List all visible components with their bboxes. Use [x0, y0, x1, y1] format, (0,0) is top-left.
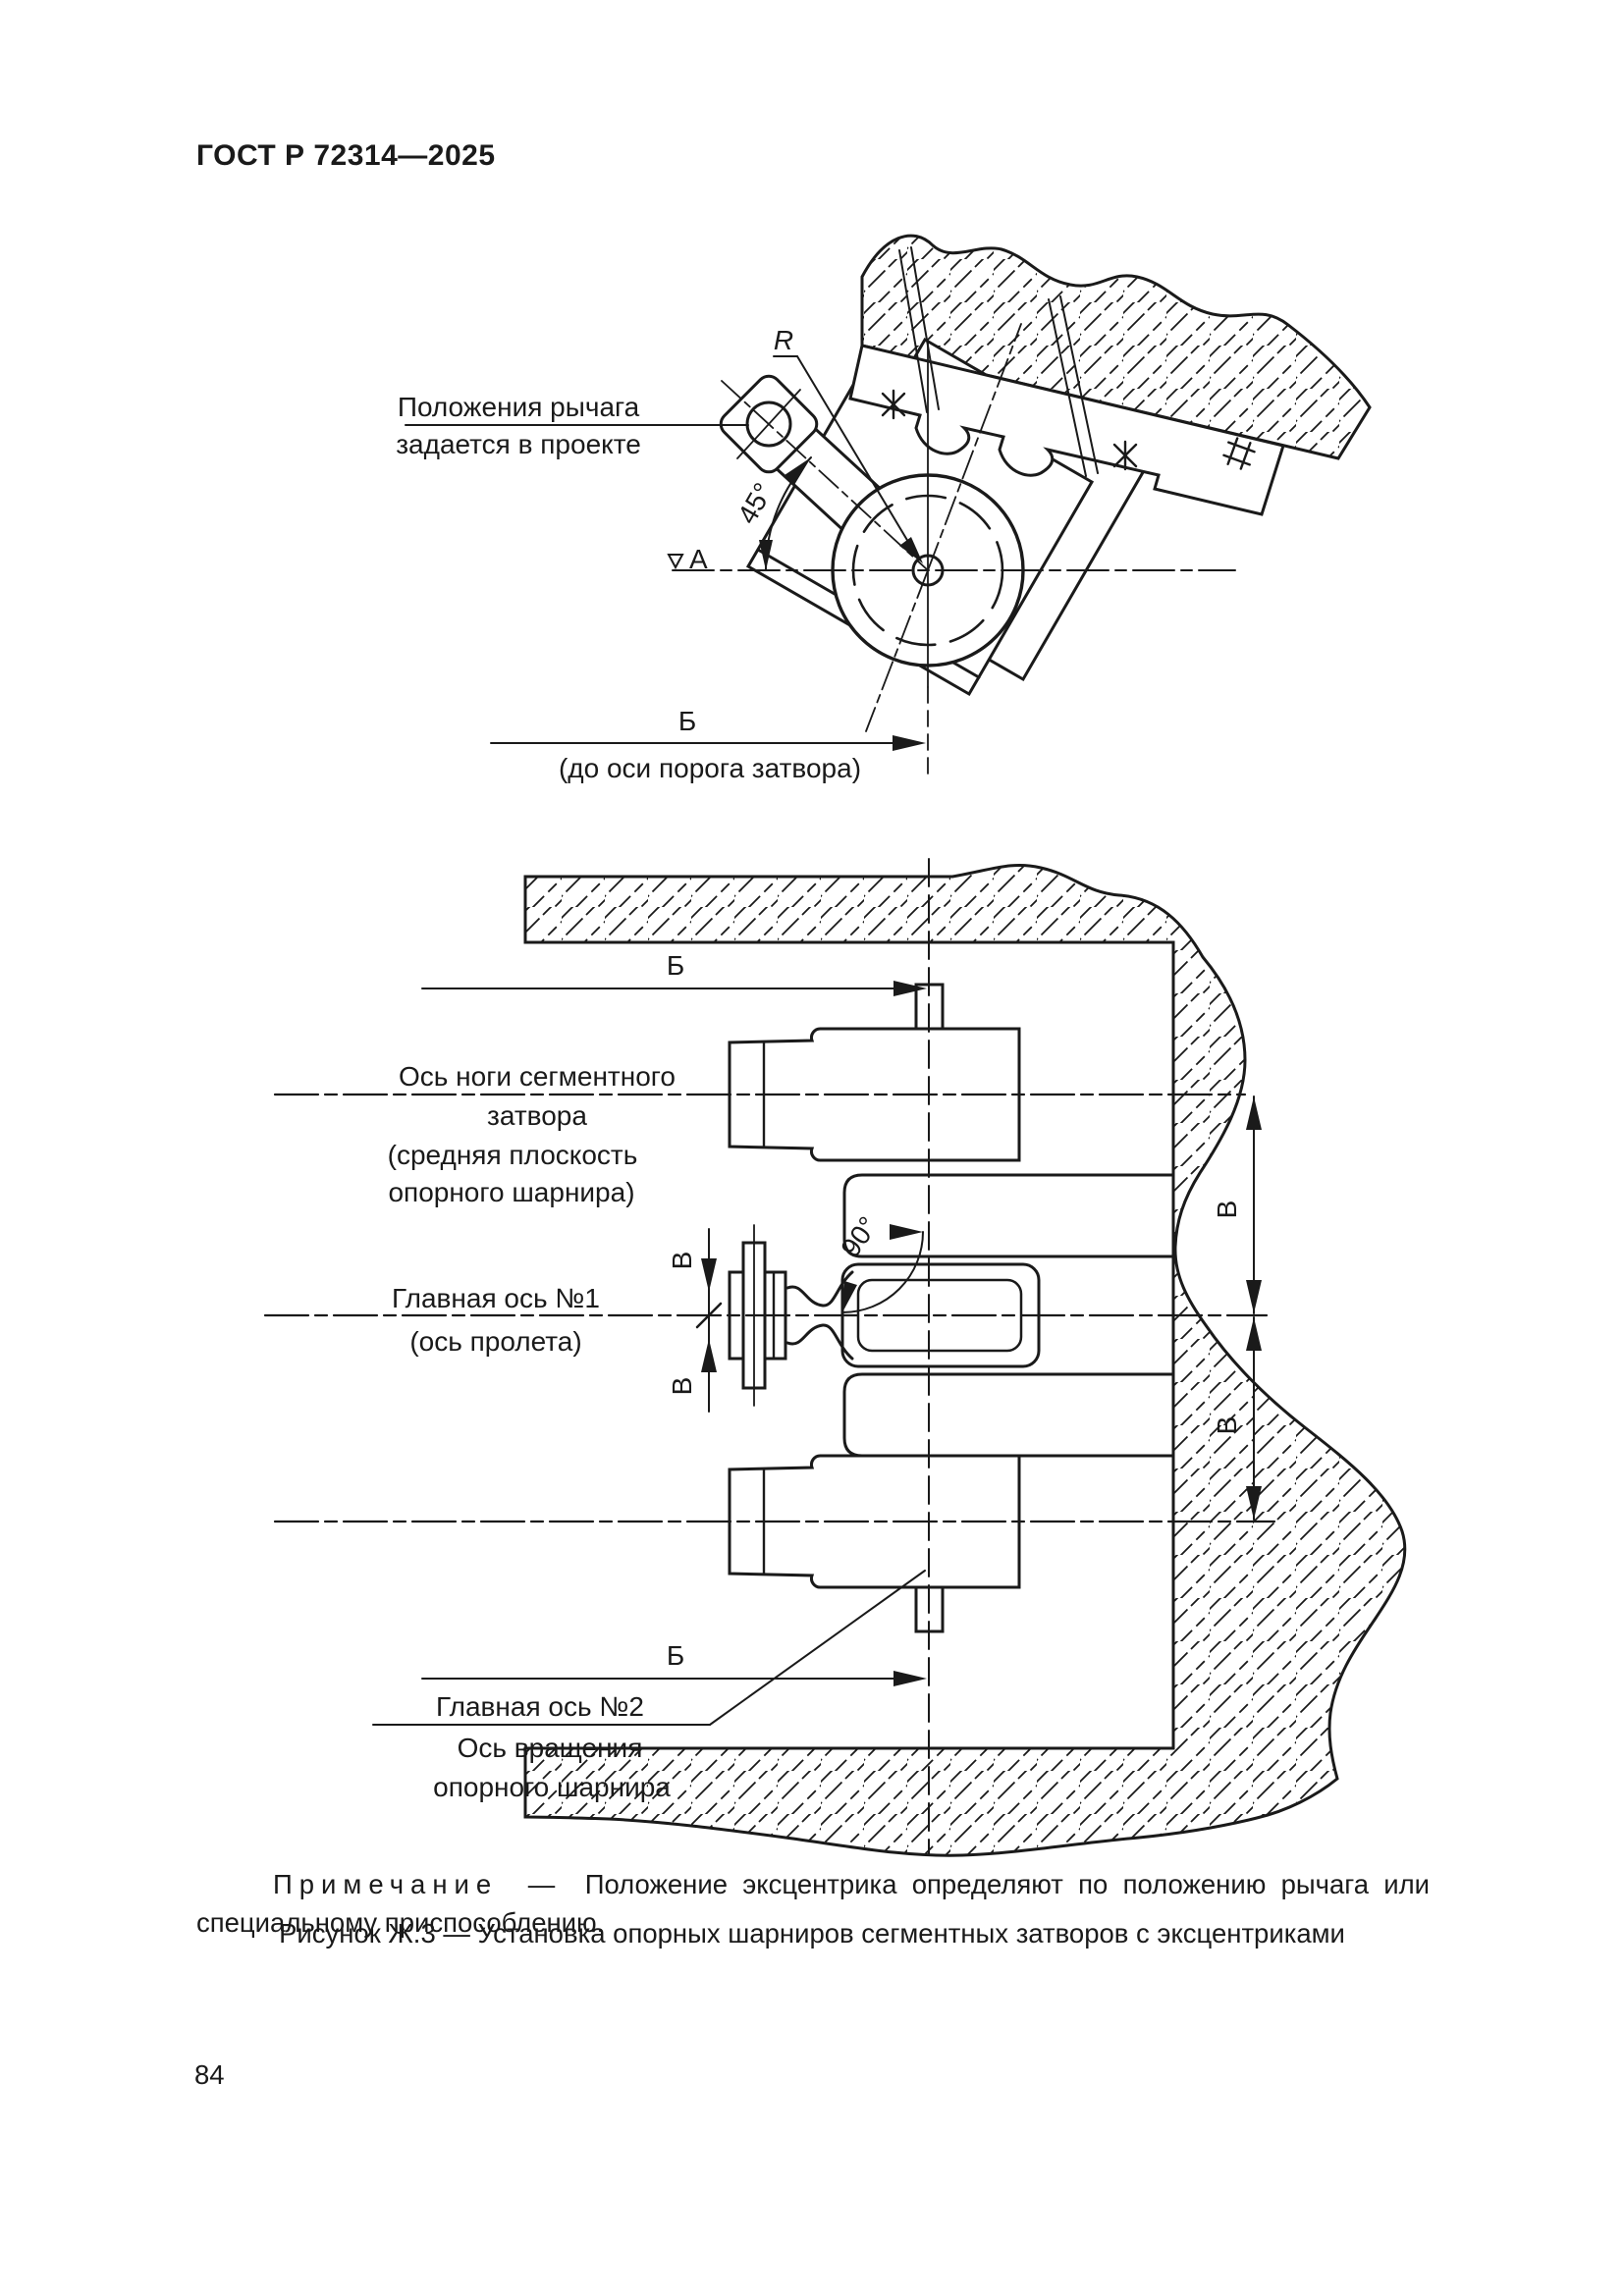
figure-caption: Рисунок Ж.3 — Установка опорных шарниров…	[0, 1918, 1624, 1949]
document-page: ГОСТ Р 72314—2025	[0, 0, 1624, 2296]
note-dash: —	[528, 1869, 556, 1899]
dimension-V-label: В	[1212, 1416, 1242, 1435]
lever-position-label-line1: Положения рычага	[398, 392, 640, 422]
dimension-B-upper-label: Б	[667, 950, 684, 981]
leg-axis-label-line2: затвора	[487, 1100, 587, 1131]
dimension-V-label: В	[667, 1252, 697, 1270]
main-axis2-label-line1: Главная ось №2	[436, 1691, 644, 1722]
dimension-B-upper	[422, 981, 927, 996]
figure-top-eccentric-lever-view: R 45° А Б (до оси порога затвора) П	[396, 236, 1370, 783]
page-number: 84	[194, 2059, 225, 2091]
leg-axis-label-line1: Ось ноги сегментного	[399, 1061, 676, 1092]
upper-hinge-body	[730, 985, 1019, 1160]
dimension-B-note: (до оси порога затвора)	[559, 753, 861, 783]
technical-drawing: R 45° А Б (до оси порога затвора) П	[0, 0, 1624, 2296]
note-label: Примечание	[273, 1869, 498, 1899]
main-axis1-label-line1: Главная ось №1	[392, 1283, 600, 1313]
dimension-V-label: В	[667, 1377, 697, 1396]
main-axis2-leader	[710, 1571, 925, 1725]
dimension-V-right-upper	[1246, 1096, 1262, 1313]
main-axis2-label-line2: Ось вращения	[458, 1733, 643, 1763]
angle-45-label: 45°	[731, 478, 779, 529]
lower-hinge-body	[730, 1456, 1019, 1631]
fork-arm-lower	[844, 1374, 1173, 1456]
fork-arm-upper	[844, 1175, 1173, 1256]
leg-axis-label-line4: опорного шарнира)	[388, 1177, 634, 1207]
leg-axis-label-line3: (средняя плоскость	[388, 1140, 638, 1170]
dimension-B-lower-label: Б	[667, 1640, 684, 1671]
lever-position-label-line2: задается в проекте	[396, 429, 641, 459]
radius-label: R	[774, 325, 793, 355]
dimension-B-label: Б	[678, 706, 696, 736]
dimension-V-label: В	[1212, 1201, 1242, 1219]
dimension-B-top-figure	[491, 735, 926, 751]
main-axis2-label-line3: опорного шарнира	[433, 1772, 671, 1802]
level-mark-label: А	[689, 544, 708, 574]
figure-bottom-hinge-installation-view: 90° Б Б В В	[265, 859, 1405, 1855]
level-mark-triangle	[669, 555, 682, 567]
main-axis1-label-line2: (ось пролета)	[409, 1326, 581, 1357]
dimension-B-lower	[422, 1671, 927, 1686]
dimension-V-left	[697, 1229, 721, 1412]
